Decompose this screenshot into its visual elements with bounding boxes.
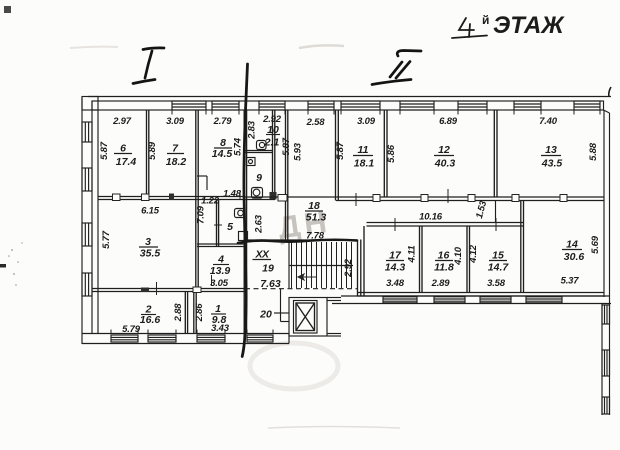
svg-text:12: 12 bbox=[438, 144, 450, 156]
svg-text:6: 6 bbox=[120, 143, 126, 155]
svg-text:5.87: 5.87 bbox=[281, 137, 292, 156]
svg-text:5.86: 5.86 bbox=[386, 144, 397, 163]
svg-text:14: 14 bbox=[566, 239, 578, 251]
svg-text:5.37: 5.37 bbox=[561, 276, 580, 287]
svg-text:5.87: 5.87 bbox=[99, 141, 110, 160]
svg-text:7.40: 7.40 bbox=[539, 116, 558, 127]
svg-text:XX: XX bbox=[254, 249, 270, 261]
svg-text:17: 17 bbox=[389, 250, 402, 262]
svg-text:2.86: 2.86 bbox=[194, 303, 205, 323]
svg-text:18: 18 bbox=[308, 200, 320, 212]
svg-text:19: 19 bbox=[262, 263, 274, 275]
svg-text:2.89: 2.89 bbox=[431, 278, 451, 289]
svg-text:2.58: 2.58 bbox=[306, 117, 326, 128]
svg-text:3.09: 3.09 bbox=[357, 116, 376, 127]
svg-text:1.22: 1.22 bbox=[201, 196, 220, 207]
svg-text:16: 16 bbox=[438, 250, 450, 262]
svg-text:4: 4 bbox=[217, 254, 224, 266]
svg-text:51.3: 51.3 bbox=[306, 212, 327, 224]
svg-text:2.92: 2.92 bbox=[343, 258, 354, 278]
svg-text:1.48: 1.48 bbox=[223, 189, 242, 200]
svg-text:й: й bbox=[482, 13, 489, 27]
svg-text:2.97: 2.97 bbox=[112, 116, 132, 127]
svg-text:17.4: 17.4 bbox=[116, 156, 137, 168]
svg-text:15: 15 bbox=[492, 250, 504, 262]
svg-text:7.78: 7.78 bbox=[306, 231, 325, 242]
svg-text:3.09: 3.09 bbox=[166, 116, 185, 127]
svg-text:5: 5 bbox=[227, 221, 233, 233]
svg-text:20: 20 bbox=[259, 309, 272, 321]
svg-text:ЭТАЖ: ЭТАЖ bbox=[493, 12, 565, 39]
svg-text:18.2: 18.2 bbox=[166, 156, 187, 168]
svg-text:9: 9 bbox=[256, 172, 262, 184]
svg-text:3: 3 bbox=[145, 236, 151, 248]
svg-text:4.12: 4.12 bbox=[468, 244, 479, 264]
svg-text:2.83: 2.83 bbox=[247, 120, 258, 140]
svg-text:4.11: 4.11 bbox=[407, 246, 418, 264]
svg-text:5.93: 5.93 bbox=[293, 142, 304, 161]
svg-text:11: 11 bbox=[358, 144, 369, 156]
svg-text:5.79: 5.79 bbox=[122, 324, 141, 335]
svg-text:16.6: 16.6 bbox=[140, 314, 161, 326]
svg-text:3.05: 3.05 bbox=[210, 278, 229, 289]
svg-text:10.16: 10.16 bbox=[419, 212, 443, 223]
svg-text:14.5: 14.5 bbox=[212, 148, 233, 160]
svg-text:11.8: 11.8 bbox=[434, 262, 454, 274]
svg-text:5.88: 5.88 bbox=[588, 142, 599, 161]
svg-text:13.9: 13.9 bbox=[210, 265, 231, 277]
svg-text:3.58: 3.58 bbox=[487, 278, 506, 289]
svg-text:40.3: 40.3 bbox=[434, 158, 456, 170]
svg-text:35.5: 35.5 bbox=[140, 248, 161, 260]
svg-text:2.63: 2.63 bbox=[254, 214, 265, 234]
svg-text:5.87: 5.87 bbox=[335, 141, 346, 160]
svg-text:7.63: 7.63 bbox=[260, 278, 281, 290]
svg-text:2.79: 2.79 bbox=[213, 116, 233, 127]
svg-text:3.43: 3.43 bbox=[211, 323, 230, 334]
svg-text:43.5: 43.5 bbox=[541, 158, 563, 170]
svg-text:4.10: 4.10 bbox=[453, 246, 464, 266]
svg-text:6.89: 6.89 bbox=[439, 116, 458, 127]
svg-text:7.09: 7.09 bbox=[196, 205, 207, 224]
svg-text:2.88: 2.88 bbox=[173, 303, 184, 323]
svg-text:5.77: 5.77 bbox=[101, 230, 112, 249]
svg-text:5.74: 5.74 bbox=[233, 137, 244, 156]
svg-text:14.7: 14.7 bbox=[488, 262, 510, 274]
svg-text:2.1: 2.1 bbox=[264, 137, 280, 149]
svg-text:30.6: 30.6 bbox=[564, 251, 585, 263]
svg-text:18.1: 18.1 bbox=[354, 158, 375, 170]
svg-text:6.15: 6.15 bbox=[141, 206, 160, 217]
svg-text:5.69: 5.69 bbox=[590, 235, 601, 254]
svg-text:3.48: 3.48 bbox=[386, 278, 405, 289]
svg-text:5.89: 5.89 bbox=[147, 141, 158, 160]
svg-text:14.3: 14.3 bbox=[385, 262, 406, 274]
svg-text:13: 13 bbox=[545, 144, 557, 156]
